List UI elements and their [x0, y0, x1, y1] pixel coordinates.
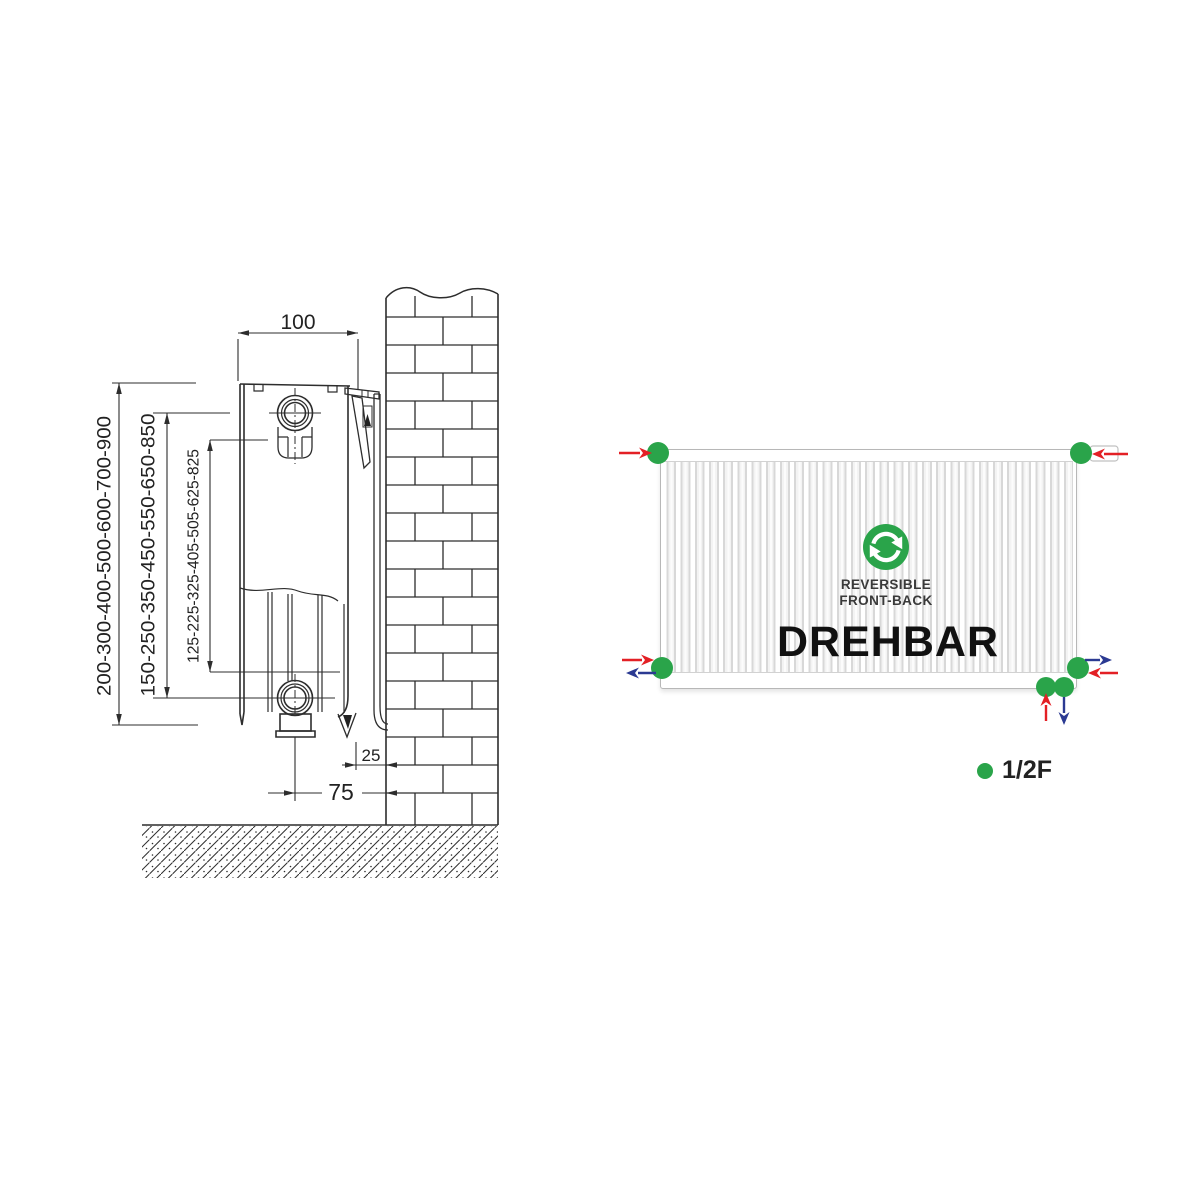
green-connection-dot-icon: [977, 763, 993, 779]
dim-bracket-label: 125-225-325-405-505-625-825: [185, 449, 202, 663]
reversible-badge-line1: REVERSIBLE: [786, 577, 986, 592]
reversible-recycle-icon: [863, 524, 909, 570]
dim-pipe-to-wall-label: 75: [328, 779, 354, 805]
dim-overall-label: 200-300-400-500-600-700-900: [95, 416, 116, 696]
dimension-bracket-height: 125-225-325-405-505-625-825: [185, 440, 340, 672]
dimension-depth: 100: [238, 311, 358, 389]
dim-wall-gap-label: 25: [362, 746, 381, 765]
brick-wall: [386, 288, 498, 825]
installation-side-view: 100 200-300-400-500-600-700-900 150-250-…: [95, 288, 498, 878]
connection-bottom-2: [1054, 677, 1074, 697]
dim-center-label: 150-250-350-450-550-650-850: [139, 414, 160, 697]
legend-label: 1/2F: [1002, 756, 1052, 785]
flow-arrow-outlet-bottom-down: [1059, 697, 1070, 725]
flow-arrow-inlet-bottom-left: [622, 655, 654, 666]
dimension-wall-gap: 25: [342, 742, 404, 770]
connection-bottom-left: [651, 657, 673, 679]
dimension-lines: 100 200-300-400-500-600-700-900 150-250-…: [95, 311, 410, 805]
radiator-section: [240, 384, 350, 737]
reversible-badge-line2: FRONT-BACK: [786, 593, 986, 608]
connection-top-right: [1070, 442, 1092, 464]
dimension-pipe-to-wall: 75: [268, 737, 410, 805]
diagram-overlay: 100 200-300-400-500-600-700-900 150-250-…: [0, 0, 1200, 1200]
dim-depth-label: 100: [280, 311, 315, 334]
flow-arrow-inlet-bottom-right: [1088, 668, 1118, 679]
flow-arrow-inlet-bottom-up: [1041, 693, 1052, 721]
flow-arrow-inlet-top-left: [619, 448, 652, 459]
floor-ground: [142, 825, 498, 878]
product-diagram: 100 200-300-400-500-600-700-900 150-250-…: [0, 0, 1200, 1200]
dimension-center-height: 150-250-350-450-550-650-850: [139, 413, 335, 698]
legend-half-inch-connection: 1/2F: [977, 756, 1052, 785]
rotatable-label: DREHBAR: [738, 618, 1038, 667]
flow-arrow-outlet-bottom-right: [1085, 655, 1112, 666]
wall-bracket: [338, 388, 388, 737]
